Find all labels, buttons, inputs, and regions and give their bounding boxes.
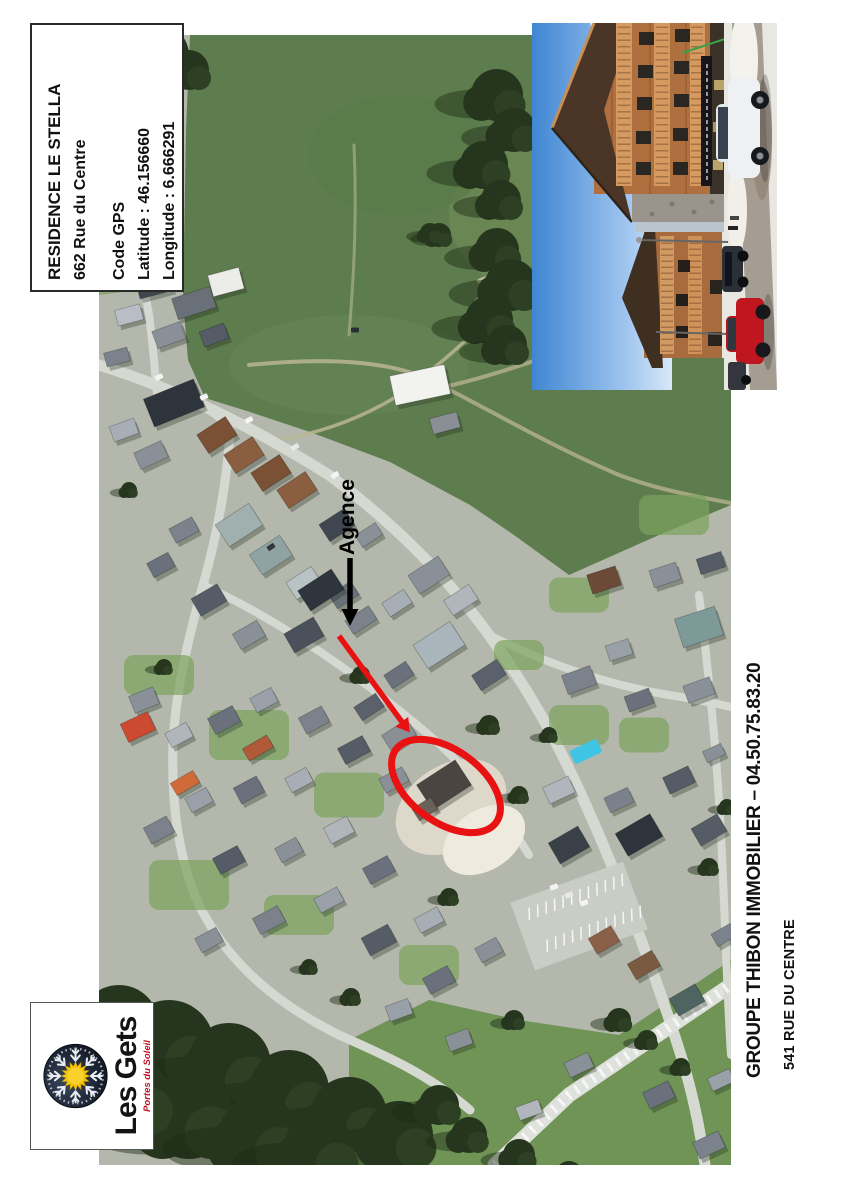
residence-name: RESIDENCE LE STELLA	[42, 25, 68, 280]
gps-heading: Code GPS	[107, 25, 132, 280]
gps-info-content: RESIDENCE LE STELLA 662 Rue du Centre Co…	[32, 25, 182, 290]
residence-address: 662 Rue du Centre	[68, 25, 93, 280]
les-gets-logo: Les Gets Portes du Soleil	[31, 1003, 153, 1149]
property-location-sheet: RESIDENCE LE STELLA 662 Rue du Centre Co…	[0, 0, 849, 1200]
agence-label: Agence	[336, 479, 359, 555]
chalet-photo-content	[532, 23, 777, 390]
agency-contact-line: GROUPE THIBON IMMOBILIER – 04.50.75.83.2…	[744, 663, 766, 1078]
pedestrian	[730, 216, 739, 220]
pedestrian	[728, 226, 738, 230]
les-gets-sun-emblem-icon	[41, 1040, 110, 1112]
spacer	[93, 25, 107, 280]
gps-longitude: Longitude : 6.666291	[157, 25, 182, 280]
gps-latitude: Latitude : 46.156660	[132, 25, 157, 280]
chalet-photo	[532, 23, 777, 390]
logo-title: Les Gets	[112, 1017, 142, 1136]
les-gets-logo-box: Les Gets Portes du Soleil	[30, 1002, 154, 1150]
gps-info-box: RESIDENCE LE STELLA 662 Rue du Centre Co…	[30, 23, 184, 292]
agency-address-line: 541 RUE DU CENTRE	[782, 919, 798, 1070]
logo-tagline: Portes du Soleil	[142, 1040, 153, 1112]
